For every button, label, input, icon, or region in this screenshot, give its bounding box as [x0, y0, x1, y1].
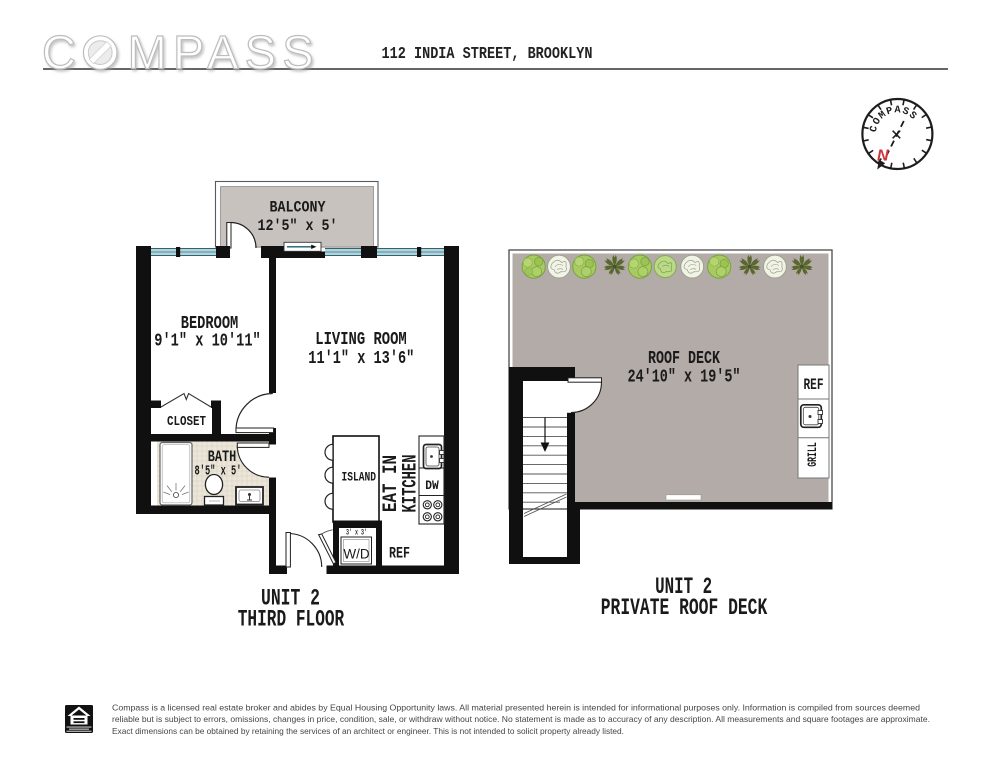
svg-text:ISLAND: ISLAND: [342, 470, 377, 485]
svg-text:GRILL: GRILL: [805, 442, 820, 467]
svg-text:THIRD FLOOR: THIRD FLOOR: [238, 607, 345, 634]
svg-text:BALCONY: BALCONY: [270, 199, 327, 217]
svg-text:8'5" x 5': 8'5" x 5': [195, 465, 242, 480]
svg-text:Exact dimensions can be obtain: Exact dimensions can be obtained by reta…: [112, 726, 624, 736]
svg-text:9'1" x 10'11": 9'1" x 10'11": [154, 331, 261, 352]
svg-text:12'5" x 5': 12'5" x 5': [258, 217, 338, 235]
svg-text:BATH: BATH: [208, 448, 237, 466]
svg-text:REF: REF: [804, 376, 824, 394]
svg-text:Compass is a licensed real est: Compass is a licensed real estate broker…: [112, 702, 920, 712]
svg-text:reliable but is subject to err: reliable but is subject to errors, omiss…: [112, 714, 930, 724]
svg-text:N: N: [877, 148, 889, 165]
svg-text:KITCHEN: KITCHEN: [400, 455, 423, 513]
svg-text:11'1" x 13'6": 11'1" x 13'6": [308, 348, 414, 369]
svg-text:CLOSET: CLOSET: [167, 414, 206, 430]
svg-text:PRIVATE ROOF DECK: PRIVATE ROOF DECK: [601, 595, 768, 622]
svg-text:REF: REF: [389, 545, 410, 563]
svg-text:24'10" x 19'5": 24'10" x 19'5": [628, 367, 741, 388]
svg-text:MPASS: MPASS: [128, 26, 314, 79]
svg-text:C: C: [42, 26, 76, 79]
svg-text:3' x 3': 3' x 3': [346, 529, 367, 538]
svg-text:112 INDIA STREET, BROOKLYN: 112 INDIA STREET, BROOKLYN: [382, 44, 593, 63]
svg-text:W/D: W/D: [343, 547, 369, 562]
svg-text:DW: DW: [425, 478, 439, 493]
